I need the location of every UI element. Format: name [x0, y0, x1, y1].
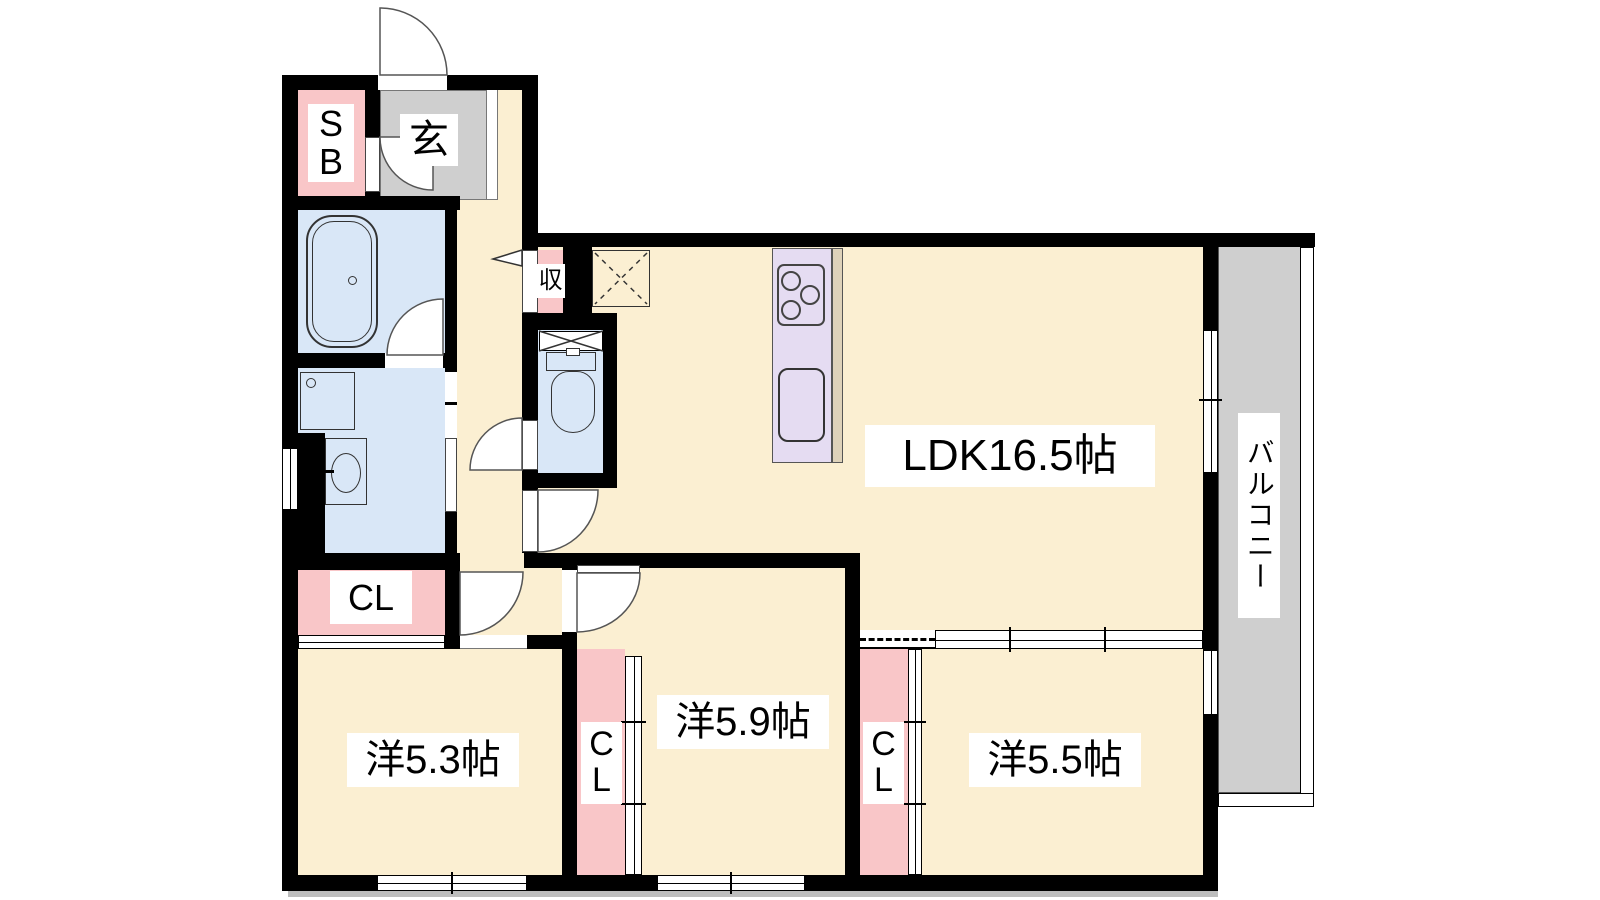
wall-right-a — [1203, 247, 1218, 330]
balcony-railing-right — [1300, 247, 1314, 807]
label-shoebox: SB — [308, 104, 354, 182]
label-west55: 洋5.5帖 — [969, 733, 1141, 787]
label-west59: 洋5.9帖 — [657, 695, 829, 749]
west59-door-arc — [577, 573, 640, 632]
hall-ldk-door-arc — [538, 490, 598, 552]
wall-right-b — [1203, 473, 1218, 650]
kitchen-sink — [778, 368, 825, 442]
label-closet55: CL — [863, 722, 904, 804]
floor-plan: LDK16.5帖 洋5.3帖 洋5.9帖 洋5.5帖 バルコニー 玄 SB 収 … — [0, 0, 1600, 900]
toilet-button — [566, 348, 580, 356]
shoebox-door-leaf — [365, 137, 380, 192]
wall-outer-top-left — [282, 75, 378, 90]
closet53-sliding-doors — [298, 635, 445, 649]
washing-machine-drain — [306, 378, 316, 388]
west59-door-leaf — [577, 565, 640, 573]
west59-door-gap — [562, 570, 577, 632]
window-55-balcony — [1203, 650, 1218, 715]
partition-ldk-55-sliding — [935, 630, 1203, 649]
wall-bath-wash-left — [298, 353, 385, 368]
wall-ps-block — [298, 433, 325, 553]
refrigerator-space-icon — [592, 250, 650, 307]
vanity-basin — [331, 453, 361, 493]
wall-bottom-shadow — [288, 891, 1218, 897]
window-ldk-balcony — [1203, 330, 1218, 473]
wall-toilet-top — [522, 313, 617, 330]
partition-ldk-55-dashed — [860, 630, 935, 649]
label-ldk: LDK16.5帖 — [865, 425, 1155, 487]
closet59-tick-bottom — [621, 803, 646, 805]
wall-leftblock-right — [522, 88, 538, 247]
closet55-tick-bottom — [904, 803, 926, 805]
washroom-sliding-door — [445, 438, 457, 512]
wall-sb-right-upper — [365, 90, 380, 137]
wall-storage-right — [563, 247, 592, 313]
label-west53: 洋5.3帖 — [347, 733, 519, 787]
storage-door-swing — [493, 250, 522, 267]
hall-ldk-door-leaf — [522, 490, 538, 552]
kitchen-counter-edge — [832, 248, 843, 463]
wall-closet53-right — [445, 553, 460, 649]
toilet-door-arc — [470, 418, 522, 470]
label-genkan: 玄 — [400, 114, 458, 166]
bathtub-inner — [312, 221, 372, 342]
label-balcony: バルコニー — [1238, 413, 1280, 618]
wall-wash-bottom — [298, 553, 460, 570]
toilet-door-leaf — [522, 420, 538, 470]
west53-door-gap — [460, 635, 527, 649]
closet55-tick-top — [904, 721, 926, 723]
entry-door-gap — [378, 75, 447, 90]
wall-right-c — [1203, 715, 1218, 891]
wall-below-genkan — [298, 196, 460, 210]
wall-toilet-right — [603, 330, 617, 488]
wall-toilet-bottom — [522, 473, 617, 488]
wall-53-top-right — [527, 635, 562, 649]
balcony-railing-bottom — [1218, 793, 1314, 807]
stove-icon — [777, 264, 825, 326]
toilet-bowl — [551, 371, 595, 433]
wall-bath-right — [445, 208, 457, 368]
window-59-tick — [730, 872, 732, 894]
washroom-door-track — [445, 372, 457, 438]
label-storage: 収 — [536, 264, 565, 298]
label-closet59: CL — [581, 722, 622, 804]
partition-tick-2 — [1104, 627, 1106, 652]
wall-sb-right-lower — [365, 192, 380, 198]
wall-ldk-59 — [524, 553, 845, 568]
closet59-tick-top — [621, 721, 646, 723]
closet55-sliding-doors — [908, 649, 922, 875]
entry-door-arc — [378, 8, 447, 75]
west53-door-arc — [460, 572, 523, 635]
window-ldk-tick — [1199, 399, 1222, 401]
genkan-step — [487, 90, 498, 200]
label-closet53: CL — [330, 571, 412, 624]
closet59-sliding-doors — [625, 656, 642, 875]
bathroom-door-arc — [387, 299, 443, 355]
window-washroom-left — [282, 448, 298, 510]
wall-divider-59-55 — [845, 553, 860, 875]
bathtub-drain — [348, 276, 357, 285]
partition-tick-1 — [1009, 627, 1011, 652]
window-53-tick — [451, 872, 453, 894]
wall-ldk-top — [522, 233, 1315, 247]
